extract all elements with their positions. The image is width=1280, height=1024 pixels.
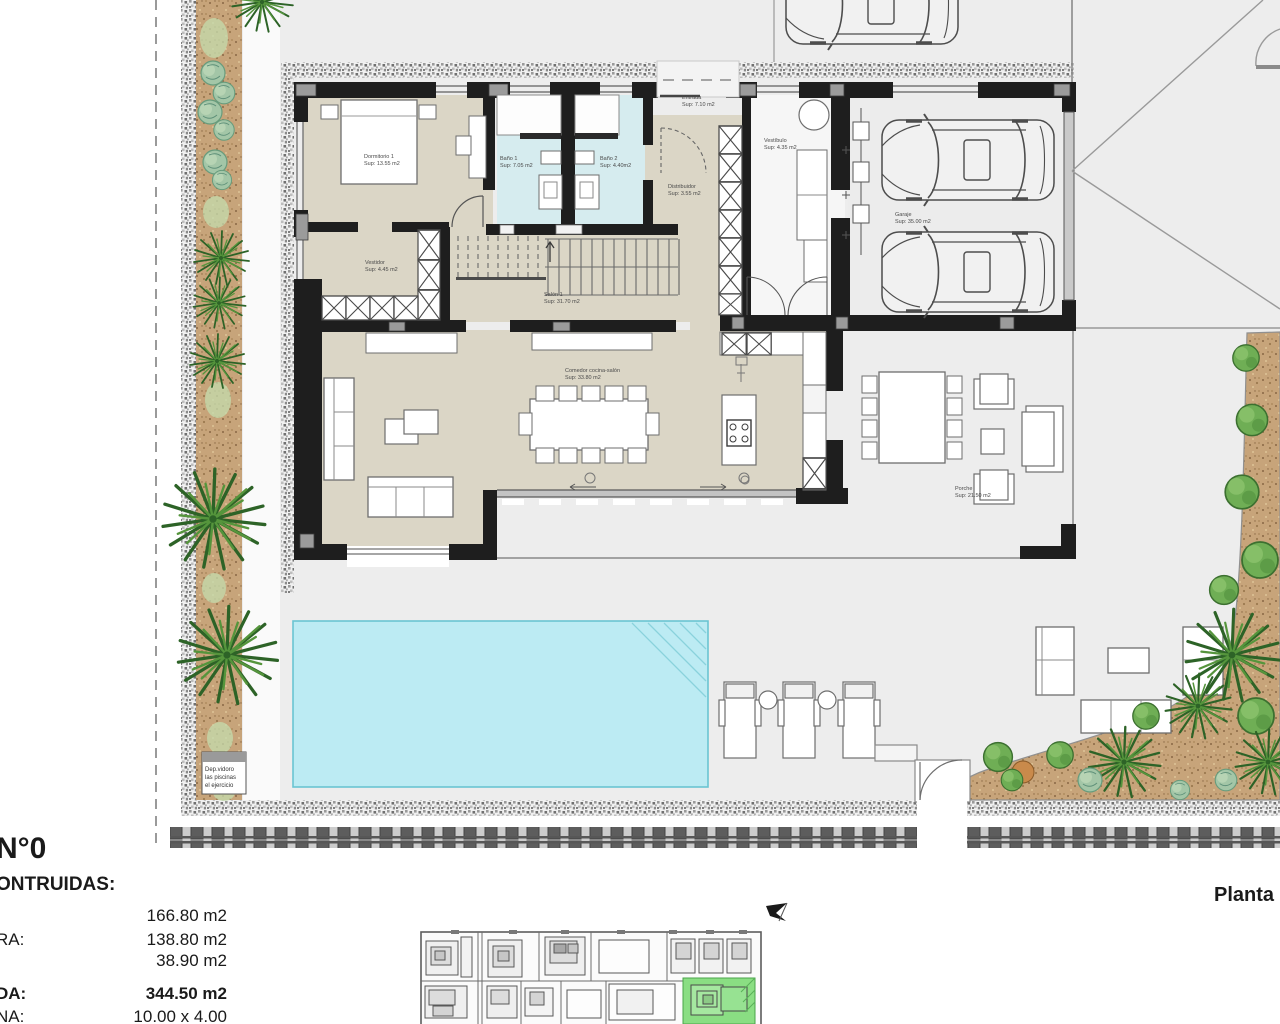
svg-text:166.80 m2: 166.80 m2 [147,906,227,925]
svg-text:Dep.vidoro: Dep.vidoro [205,767,235,773]
svg-text:Baño 1: Baño 1 [500,156,517,162]
svg-text:ONTRUIDAS:: ONTRUIDAS: [0,874,115,895]
svg-text:las piscinas: las piscinas [205,775,236,781]
svg-text:Sup: 4.40m2: Sup: 4.40m2 [600,163,631,169]
svg-text:RA:: RA: [0,930,24,949]
svg-text:Entrada: Entrada [682,95,702,101]
svg-text:Porche: Porche [955,486,972,492]
svg-text:DA:: DA: [0,984,26,1003]
svg-text:Sup: 31.70 m2: Sup: 31.70 m2 [544,299,580,305]
svg-text:Sup: 35.00 m2: Sup: 35.00 m2 [895,219,931,225]
svg-text:Sup: 13.55 m2: Sup: 13.55 m2 [364,161,400,167]
svg-text:Sup: 3.55 m2: Sup: 3.55 m2 [668,191,701,197]
svg-text:Vestíbulo: Vestíbulo [764,138,787,144]
svg-text:Sup: 4.45 m2: Sup: 4.45 m2 [365,267,398,273]
svg-text:Baño 2: Baño 2 [600,156,617,162]
svg-text:38.90 m2: 38.90 m2 [156,951,227,970]
svg-text:Sup: 4.35 m2: Sup: 4.35 m2 [764,145,797,151]
svg-text:Dormitorio 1: Dormitorio 1 [364,154,394,160]
svg-text:Sup: 33.80 m2: Sup: 33.80 m2 [565,375,601,381]
svg-text:NA:: NA: [0,1007,24,1024]
svg-text:Salón 1: Salón 1 [544,292,563,298]
svg-text:Comedor cocina-salón: Comedor cocina-salón [565,368,620,374]
svg-text:N°0: N°0 [0,832,46,865]
svg-text:Sup: 7.05 m2: Sup: 7.05 m2 [500,163,533,169]
svg-text:138.80 m2: 138.80 m2 [147,930,227,949]
svg-text:Distribuidor: Distribuidor [668,184,696,190]
svg-text:Garaje: Garaje [895,212,912,218]
svg-text:Planta B: Planta B [1214,884,1280,906]
svg-text:el ejercicio: el ejercicio [205,783,234,789]
svg-text:Vestidor: Vestidor [365,260,385,266]
svg-text:10.00 x 4.00: 10.00 x 4.00 [133,1007,227,1024]
svg-text:Sup: 21.50 m2: Sup: 21.50 m2 [955,493,991,499]
svg-text:344.50 m2: 344.50 m2 [146,984,227,1003]
svg-text:Sup: 7.10 m2: Sup: 7.10 m2 [682,102,715,108]
